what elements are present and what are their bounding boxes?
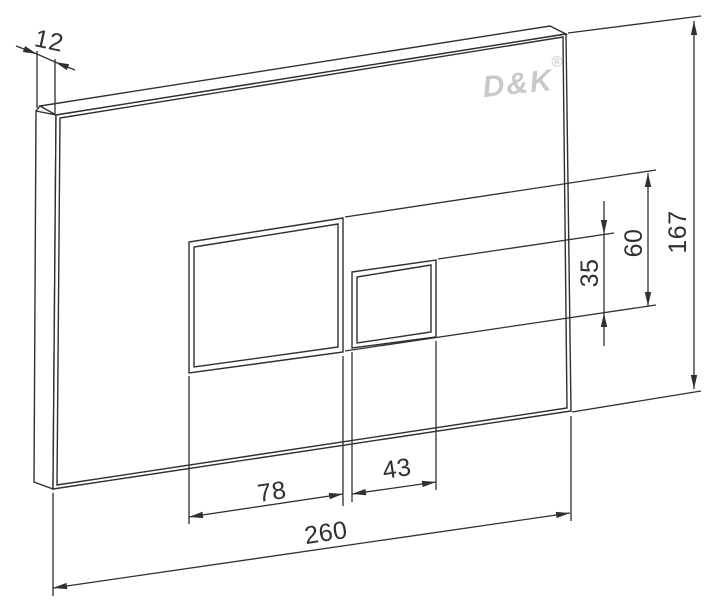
- flush-plate-technical-drawing: D&K ® 12 78 43 260 35: [0, 0, 720, 616]
- extension-line: [572, 391, 701, 412]
- dimension-value-overall-height: 167: [664, 210, 692, 253]
- dimension-value-large-button-width: 78: [256, 476, 289, 508]
- registered-trademark-icon: ®: [551, 53, 564, 71]
- dimension-leader: [55, 62, 75, 70]
- technical-drawing-canvas: D&K ® 12 78 43 260 35: [0, 0, 720, 616]
- dimension-plate-thickness: 12: [16, 24, 75, 114]
- dimension-line: [352, 482, 436, 494]
- extension-line: [568, 16, 701, 33]
- dimension-value-small-button-width: 43: [381, 453, 414, 485]
- dimension-value-large-button-height: 60: [620, 229, 648, 258]
- dimension-overall-height: 167: [568, 16, 701, 412]
- dimension-value-thickness: 12: [32, 24, 66, 57]
- plate-left-side-face: [34, 111, 56, 489]
- dimension-value-overall-width: 260: [303, 516, 350, 550]
- dimension-value-small-button-height: 35: [576, 259, 604, 288]
